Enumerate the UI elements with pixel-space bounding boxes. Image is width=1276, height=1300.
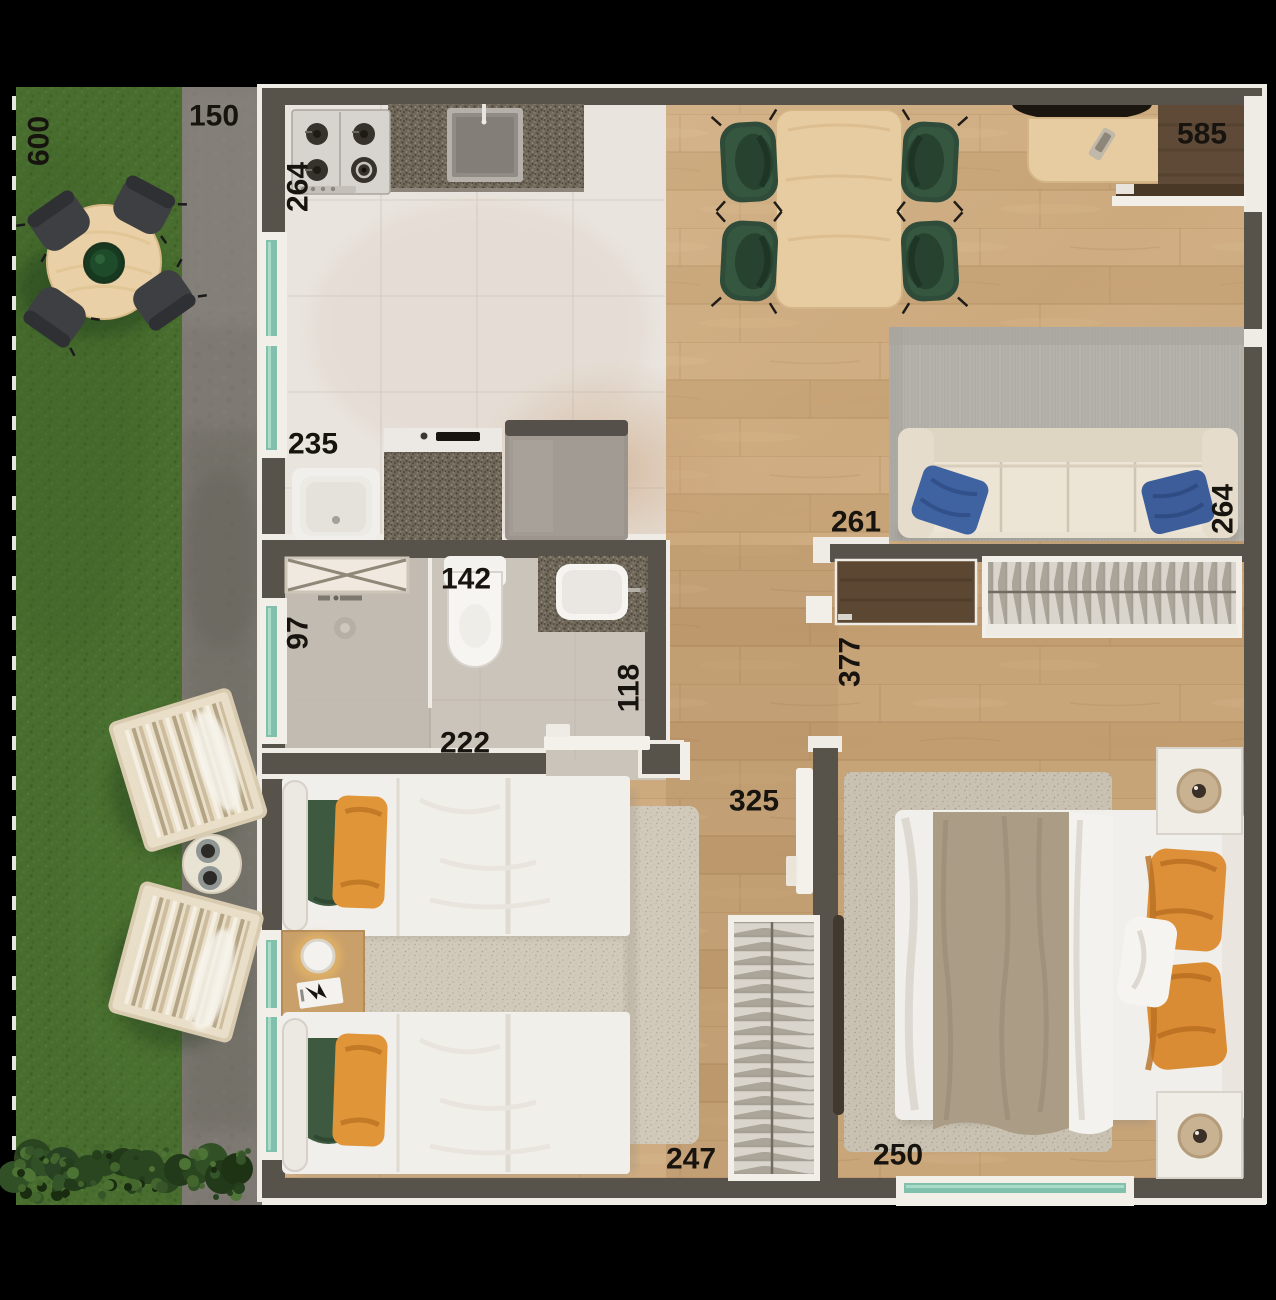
svg-text:150: 150: [189, 100, 239, 133]
svg-text:585: 585: [1177, 118, 1227, 151]
svg-text:222: 222: [440, 727, 490, 760]
svg-text:377: 377: [834, 637, 867, 687]
svg-text:247: 247: [666, 1143, 716, 1176]
svg-text:97: 97: [282, 616, 315, 649]
svg-text:325: 325: [729, 785, 779, 818]
svg-text:142: 142: [441, 563, 491, 596]
svg-text:235: 235: [288, 428, 338, 461]
svg-text:264: 264: [1207, 484, 1240, 534]
svg-text:264: 264: [282, 162, 315, 212]
svg-text:600: 600: [23, 116, 56, 166]
svg-text:250: 250: [873, 1139, 923, 1172]
svg-text:261: 261: [831, 506, 881, 539]
svg-text:118: 118: [613, 664, 646, 712]
